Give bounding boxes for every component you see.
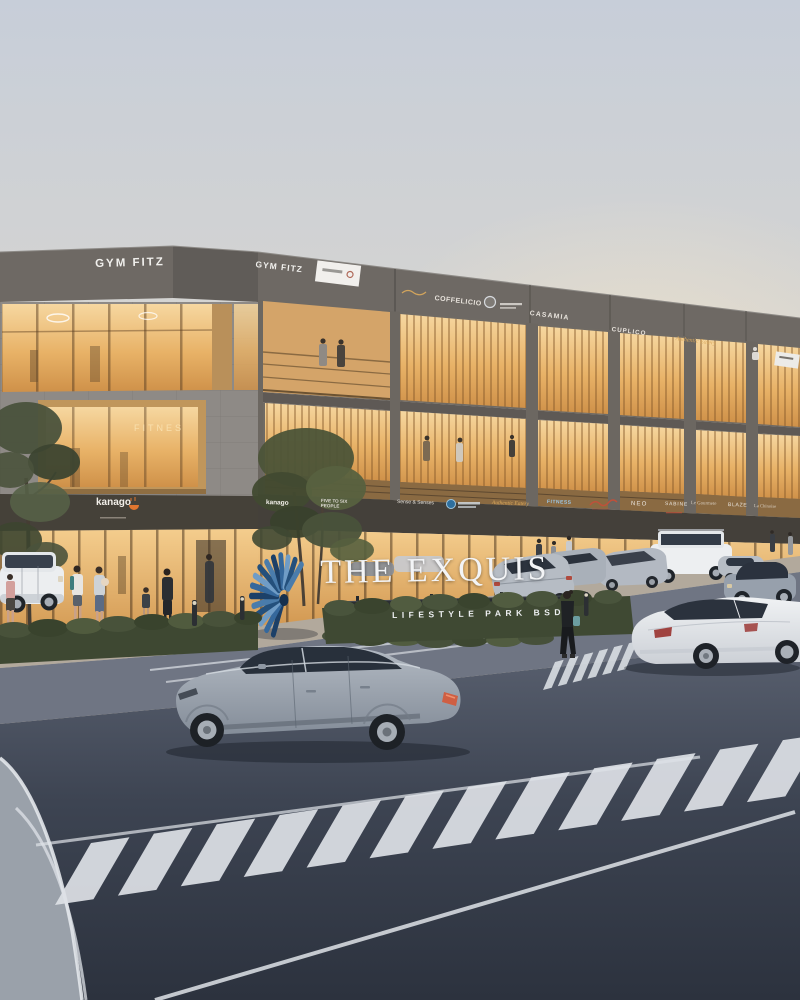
scene: GYM FITZ GYM FITZ COFFELICIO CASAMIA CUP…: [0, 0, 800, 1000]
sign-kanago-1: kanago: [96, 498, 131, 508]
shopping-bag: [573, 616, 580, 626]
sign-kanago-2: kanago: [266, 500, 289, 507]
sign-le-gourmete: Le Gourmete: [691, 502, 717, 508]
sign-five-to-six: FIVE TO SIX PEOPLE: [321, 498, 355, 510]
sign-fitness-window-glow: FITNES: [134, 424, 184, 433]
sign-fitness: FITNESS: [547, 500, 572, 506]
figure-logo: [753, 347, 757, 351]
sculpture-shadow: [250, 628, 318, 640]
circle-logo: [485, 297, 496, 308]
sign-la-chinoise: La Chinoise: [754, 504, 776, 509]
sign-gym-fitz-1: GYM FITZ: [95, 257, 165, 270]
blue-circle-logo: [447, 500, 456, 509]
sign-sabine: SABINE: [665, 502, 688, 508]
sign-neo: NEO: [631, 501, 648, 508]
monument-title: THE EXQUIS: [320, 552, 550, 590]
side-mirror: [258, 664, 266, 669]
sign-blaze: BLAZE: [728, 503, 748, 509]
